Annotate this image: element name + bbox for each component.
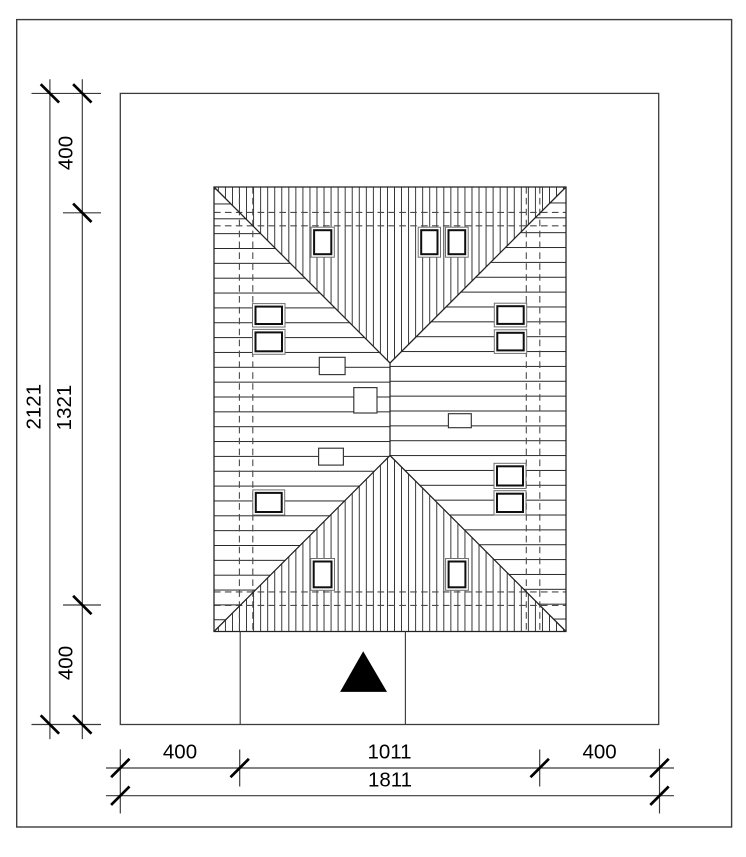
svg-text:400: 400 <box>55 646 78 680</box>
svg-text:1011: 1011 <box>367 740 411 763</box>
svg-text:400: 400 <box>582 740 616 763</box>
svg-text:1811: 1811 <box>368 769 412 792</box>
svg-text:1321: 1321 <box>53 385 76 431</box>
svg-text:2121: 2121 <box>22 384 45 430</box>
svg-text:400: 400 <box>163 740 197 763</box>
svg-text:400: 400 <box>55 136 78 170</box>
